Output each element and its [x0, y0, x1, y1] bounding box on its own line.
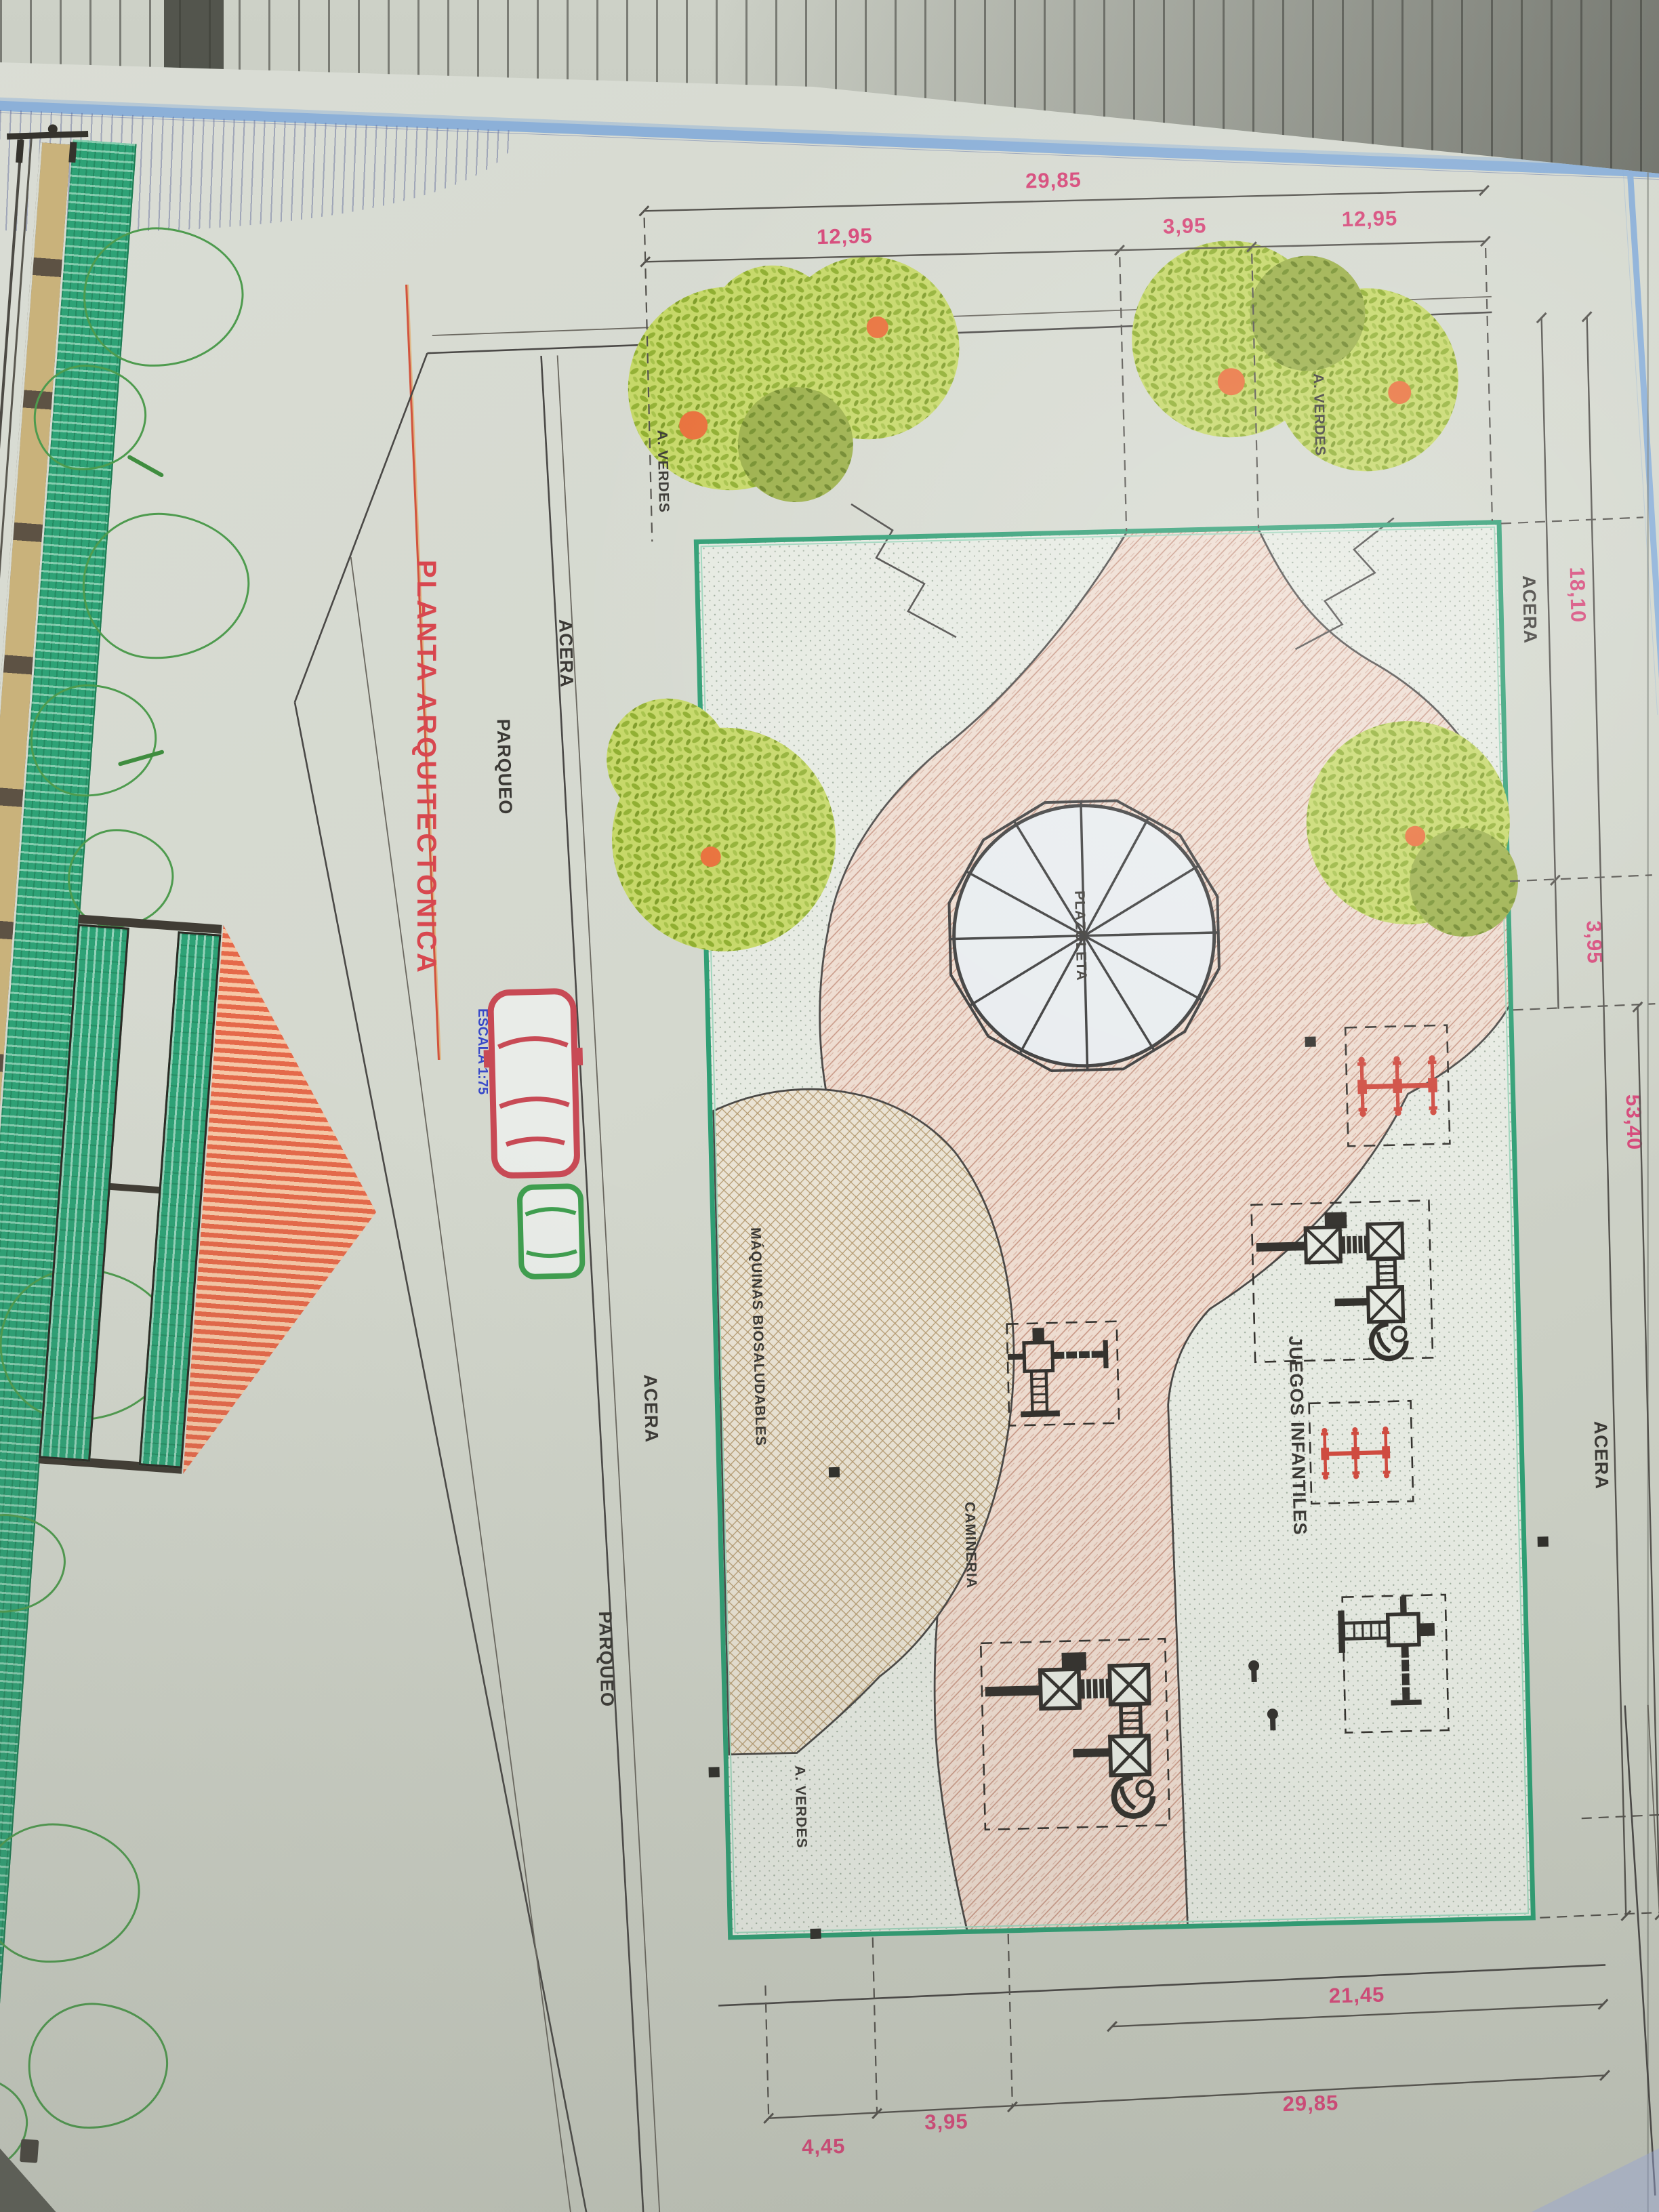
branch-sketch — [127, 455, 164, 478]
dim-bottom-seg1: 4,45 — [802, 2134, 846, 2159]
label-acera-right-bottom: ACERA — [1590, 1420, 1612, 1490]
parcel-chamfer-line — [286, 353, 435, 702]
label-acera-left: ACERA — [555, 619, 577, 688]
dim-right-3: 53,40 — [1622, 1094, 1647, 1150]
dim-bottom-inner: 21,45 — [1328, 1982, 1385, 2007]
dim-top-seg1: 12,95 — [817, 224, 873, 249]
dim-top-seg2: 3,95 — [1163, 213, 1207, 239]
dim-right-1: 18,10 — [1565, 567, 1591, 623]
street-line-right-2 — [1648, 1704, 1659, 2195]
parcel-left-line — [295, 696, 588, 2212]
label-averdes-2: A. VERDES — [1311, 373, 1328, 457]
street-dashed — [1582, 1814, 1659, 1818]
site-plan: PLAZOLETA — [246, 105, 1659, 2212]
label-camineria: CAMINERIA — [962, 1502, 979, 1589]
car-green — [520, 1186, 583, 1277]
dim-top-seg3: 12,95 — [1341, 206, 1397, 231]
tree-outline — [0, 1818, 144, 1969]
plazoleta: PLAZOLETA — [945, 797, 1223, 1075]
drawing-sheet: FACHADA FRONTAL ESCALA 1:75 PLANTA ARQUI… — [0, 0, 1659, 2212]
dim-bottom-seg3: 29,85 — [1282, 2091, 1338, 2116]
label-parqueo-top: PARQUEO — [493, 718, 516, 815]
tree-outline — [24, 1999, 172, 2135]
bench-leg — [16, 140, 24, 163]
plazoleta-label: PLAZOLETA — [1071, 890, 1089, 981]
label-averdes-1: A. VERDES — [654, 430, 672, 513]
label-averdes-3: A. VERDES — [792, 1765, 810, 1849]
street-line-right — [1625, 1705, 1656, 2196]
trash-bin-icon — [20, 2139, 39, 2163]
dimensions-bottom: 21,45 4,45 3,95 29,85 — [717, 1919, 1612, 2160]
dim-bottom-seg2: 3,95 — [924, 2109, 968, 2134]
label-parqueo-bottom: PARQUEO — [595, 1611, 617, 1707]
label-acera-bottom-left: ACERA — [640, 1374, 661, 1443]
label-acera-right-top: ACERA — [1519, 575, 1540, 644]
bench-sketch — [9, 125, 108, 180]
tree-outline — [0, 1511, 69, 1618]
dim-top-total: 29,85 — [1025, 168, 1082, 193]
bench-leg-2 — [68, 142, 77, 163]
car-red — [483, 991, 586, 1176]
bench-top — [7, 131, 88, 140]
